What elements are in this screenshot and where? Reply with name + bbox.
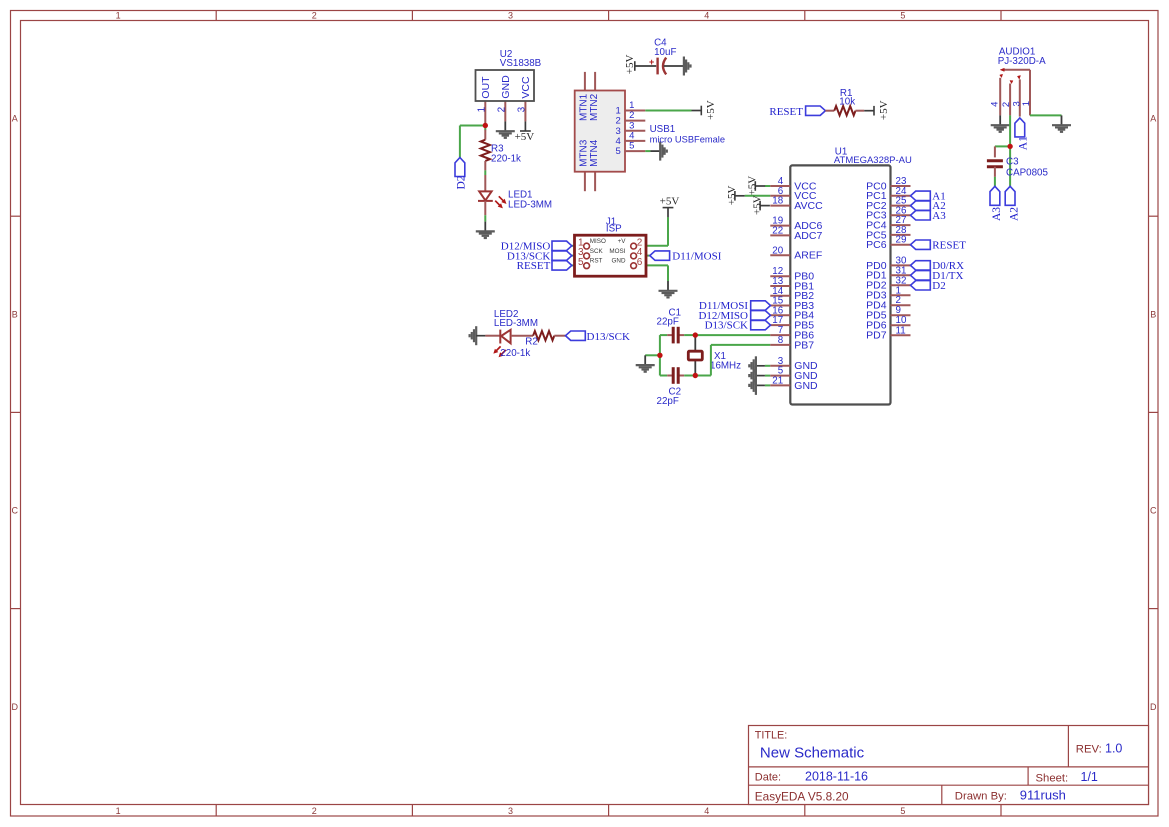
svg-text:20: 20 xyxy=(772,245,783,256)
svg-text:C: C xyxy=(12,506,19,516)
svg-text:4: 4 xyxy=(704,11,709,21)
svg-text:GND: GND xyxy=(500,75,512,99)
svg-text:MOSI: MOSI xyxy=(609,248,625,255)
svg-text:MTN4: MTN4 xyxy=(589,139,600,167)
svg-text:+5V: +5V xyxy=(660,196,680,208)
svg-text:ATMEGA328P-AU: ATMEGA328P-AU xyxy=(834,155,912,166)
svg-text:ISP: ISP xyxy=(606,224,622,235)
svg-text:A2: A2 xyxy=(1009,207,1021,221)
svg-text:22: 22 xyxy=(772,225,783,236)
svg-text:PB7: PB7 xyxy=(794,339,814,351)
svg-text:R2: R2 xyxy=(525,336,538,347)
svg-text:6: 6 xyxy=(637,257,643,268)
svg-text:Date:: Date: xyxy=(755,771,781,783)
svg-text:RESET: RESET xyxy=(769,106,803,118)
svg-text:4: 4 xyxy=(989,102,1000,107)
svg-text:18: 18 xyxy=(772,196,783,207)
svg-text:8: 8 xyxy=(778,335,784,346)
svg-text:EasyEDA V5.8.20: EasyEDA V5.8.20 xyxy=(755,790,849,804)
svg-text:RST: RST xyxy=(590,258,603,265)
svg-text:22pF: 22pF xyxy=(657,316,679,327)
svg-text:+V: +V xyxy=(618,238,627,245)
svg-text:1: 1 xyxy=(476,106,487,112)
svg-text:C: C xyxy=(1150,506,1157,516)
svg-text:VS1838B: VS1838B xyxy=(500,58,542,69)
svg-text:RESET: RESET xyxy=(517,260,551,272)
svg-text:PC6: PC6 xyxy=(866,239,887,251)
svg-text:+5V: +5V xyxy=(726,185,738,205)
svg-text:10k: 10k xyxy=(839,97,855,108)
svg-text:B: B xyxy=(12,310,18,320)
svg-text:1: 1 xyxy=(1021,101,1032,106)
svg-text:RESET: RESET xyxy=(932,239,966,251)
svg-text:B: B xyxy=(1150,310,1156,320)
svg-text:1.0: 1.0 xyxy=(1105,741,1122,755)
svg-text:AVCC: AVCC xyxy=(794,200,823,212)
svg-text:D: D xyxy=(12,702,19,712)
svg-text:Drawn By:: Drawn By: xyxy=(955,791,1007,803)
svg-text:ADC7: ADC7 xyxy=(794,230,822,242)
svg-text:1/1: 1/1 xyxy=(1081,770,1098,784)
svg-text:+5V: +5V xyxy=(747,176,759,196)
svg-text:GND: GND xyxy=(612,258,626,265)
svg-text:3: 3 xyxy=(517,106,528,112)
svg-text:OUT: OUT xyxy=(480,76,492,99)
svg-text:AREF: AREF xyxy=(794,250,822,262)
svg-text:REV:: REV: xyxy=(1076,743,1102,755)
svg-text:220-1k: 220-1k xyxy=(491,154,521,165)
svg-text:MTN2: MTN2 xyxy=(589,93,600,121)
svg-text:10uF: 10uF xyxy=(654,47,676,58)
svg-text:VCC: VCC xyxy=(520,76,532,99)
svg-text:4: 4 xyxy=(704,806,709,816)
svg-text:5: 5 xyxy=(900,806,905,816)
svg-text:2: 2 xyxy=(312,806,317,816)
svg-text:LED-3MM: LED-3MM xyxy=(494,318,538,329)
svg-text:D11/MOSI: D11/MOSI xyxy=(672,250,721,262)
svg-text:GND: GND xyxy=(794,380,818,392)
svg-text:2018-11-16: 2018-11-16 xyxy=(805,769,868,783)
svg-text:D2: D2 xyxy=(932,280,945,292)
svg-text:3: 3 xyxy=(508,806,513,816)
svg-text:C3: C3 xyxy=(1006,156,1019,167)
svg-text:CAP0805: CAP0805 xyxy=(1006,168,1048,179)
svg-text:29: 29 xyxy=(896,235,907,246)
svg-text:16MHz: 16MHz xyxy=(710,361,741,372)
svg-text:11: 11 xyxy=(896,325,906,336)
svg-text:PD7: PD7 xyxy=(866,330,887,342)
svg-text:A: A xyxy=(12,113,18,123)
svg-text:New Schematic: New Schematic xyxy=(760,744,865,761)
svg-text:22pF: 22pF xyxy=(657,396,679,407)
svg-text:+5V: +5V xyxy=(705,100,717,120)
svg-text:D13/SCK: D13/SCK xyxy=(587,331,630,343)
svg-text:A1: A1 xyxy=(1017,136,1029,150)
svg-text:2: 2 xyxy=(312,11,317,21)
svg-text:micro USBFemale: micro USBFemale xyxy=(650,134,725,144)
svg-text:+: + xyxy=(649,57,654,67)
svg-text:Sheet:: Sheet: xyxy=(1036,772,1069,784)
svg-text:A3: A3 xyxy=(991,207,1003,221)
svg-text:5: 5 xyxy=(578,257,584,268)
svg-text:5: 5 xyxy=(629,141,634,152)
svg-text:A3: A3 xyxy=(932,210,946,222)
svg-text:3: 3 xyxy=(508,11,513,21)
svg-text:SCK: SCK xyxy=(590,248,604,255)
svg-text:5: 5 xyxy=(900,11,905,21)
svg-text:+5V: +5V xyxy=(751,195,763,215)
svg-text:+5V: +5V xyxy=(878,100,890,120)
svg-text:D13/SCK: D13/SCK xyxy=(705,320,748,332)
svg-text:MISO: MISO xyxy=(590,238,606,245)
svg-text:LED-3MM: LED-3MM xyxy=(508,199,552,210)
svg-text:220-1k: 220-1k xyxy=(500,348,530,359)
svg-text:5: 5 xyxy=(616,146,621,157)
svg-text:D2: D2 xyxy=(456,175,468,189)
svg-text:A: A xyxy=(1150,113,1156,123)
svg-text:+5V: +5V xyxy=(515,131,535,143)
svg-text:21: 21 xyxy=(772,375,783,386)
svg-text:1: 1 xyxy=(116,11,121,21)
svg-text:TITLE:: TITLE: xyxy=(755,729,787,741)
svg-text:PJ-320D-A: PJ-320D-A xyxy=(998,56,1046,67)
svg-text:D: D xyxy=(1150,702,1157,712)
svg-text:1: 1 xyxy=(116,806,121,816)
svg-text:2: 2 xyxy=(496,106,507,112)
svg-text:911rush: 911rush xyxy=(1020,787,1066,802)
svg-text:+5V: +5V xyxy=(624,54,636,74)
